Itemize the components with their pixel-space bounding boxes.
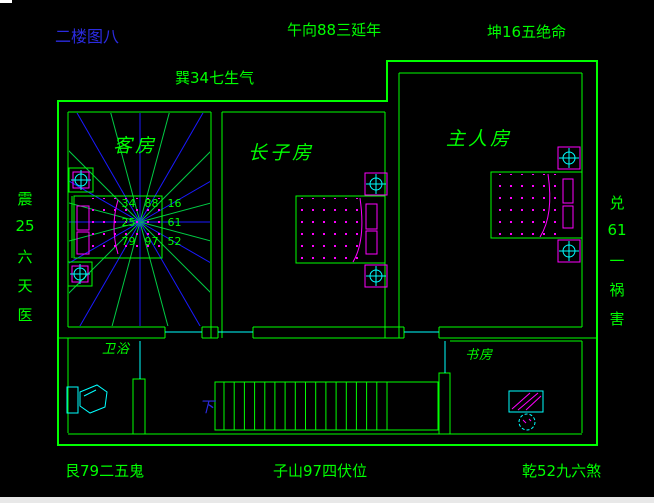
stairs <box>215 382 438 430</box>
floor-plan-drawing <box>0 0 654 503</box>
luoshu-cell: 61 <box>163 213 186 232</box>
crosshair-icon <box>365 173 387 195</box>
luoshu-cell: 25 <box>117 213 140 232</box>
compass-label-qian: 乾52九六煞 <box>522 463 601 480</box>
compass-label-wu: 午向88三延年 <box>287 22 381 39</box>
bathroom-partition <box>133 379 145 434</box>
luoshu-cell: 34 <box>117 194 140 213</box>
luoshu-cell <box>140 213 163 232</box>
floor-plan-canvas: 二楼图八 巽34七生气 午向88三延年 坤16五绝命 艮79二五鬼 子山97四伏… <box>0 0 654 503</box>
stairs-down-label: 下 <box>199 399 214 416</box>
drawing-title: 二楼图八 <box>55 28 119 46</box>
compass-label-kun: 坤16五绝命 <box>487 24 566 41</box>
luoshu-cell: 79 <box>117 232 140 251</box>
screen-edge-artifact <box>0 0 12 3</box>
toilet-icon <box>67 385 107 413</box>
stool-icon <box>519 414 535 430</box>
compass-label-zhen: 震 25 六 天 医 <box>10 188 40 333</box>
room-label-bathroom: 卫浴 <box>102 343 130 357</box>
compass-label-xun: 巽34七生气 <box>175 70 254 87</box>
luoshu-cell: 97 <box>140 232 163 251</box>
compass-label-gen: 艮79二五鬼 <box>65 463 144 480</box>
bed-master <box>491 172 582 238</box>
room-label-eldest-son: 长子房 <box>248 143 314 164</box>
bed-eldest-son <box>296 196 385 263</box>
compass-label-zishan: 子山97四伏位 <box>273 463 367 480</box>
crosshair-icon <box>365 265 387 287</box>
stair-pillar <box>439 373 450 434</box>
bottom-window-edge <box>0 497 654 503</box>
room-label-study: 书房 <box>465 349 493 363</box>
compass-label-dui: 兑 61 一 祸 害 <box>602 192 632 337</box>
luoshu-cell: 16 <box>163 194 186 213</box>
room-label-guest: 客房 <box>113 136 157 157</box>
crosshair-icon <box>69 168 93 192</box>
luoshu-cell: 52 <box>163 232 186 251</box>
crosshair-icon <box>558 147 580 169</box>
luoshu-cell: 88 <box>140 194 163 213</box>
doors-layer <box>140 332 445 379</box>
crosshair-icon <box>68 262 92 286</box>
crosshair-icon <box>558 240 580 262</box>
luoshu-grid: 34 88 16 25 61 79 97 52 <box>117 194 186 251</box>
desk-icon <box>509 391 543 412</box>
room-label-master: 主人房 <box>446 129 512 150</box>
